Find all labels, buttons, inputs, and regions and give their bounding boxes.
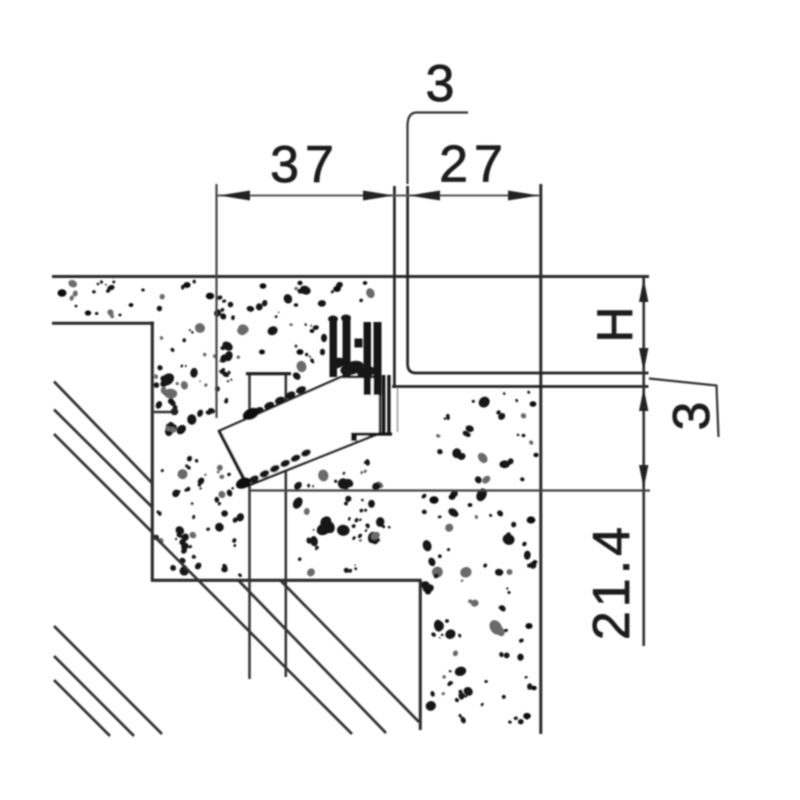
svg-text:H: H: [587, 306, 643, 342]
svg-text:3: 3: [663, 402, 721, 431]
svg-text:3: 3: [426, 55, 455, 113]
svg-text:21.4: 21.4: [583, 523, 641, 640]
svg-text:37: 37: [270, 136, 340, 194]
svg-text:27: 27: [439, 136, 509, 194]
